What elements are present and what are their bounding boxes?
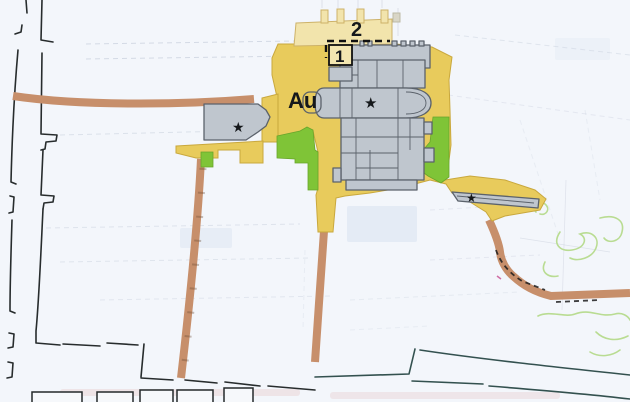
monument-star-church: ★ [364, 95, 377, 112]
crenellation [419, 41, 424, 46]
tower-footing [321, 10, 328, 23]
green-area-west [201, 152, 213, 167]
crenellation [410, 41, 415, 46]
abbey-south-band [346, 180, 417, 190]
building-outline [97, 392, 133, 402]
zone1-label: 1 [335, 47, 344, 66]
tower-footing-gray [393, 13, 400, 22]
zoning-map: Au 2 1 ★ ★ ★ [0, 0, 630, 402]
building-outline [32, 392, 82, 402]
crenellation [392, 41, 397, 46]
abbey-east-bump [424, 148, 434, 162]
area-code-label: Au [288, 88, 317, 113]
map-canvas: Au 2 1 ★ ★ ★ [0, 0, 630, 402]
crenellation [401, 41, 406, 46]
abbey-foot [333, 168, 341, 182]
abbey-cloister [341, 118, 424, 180]
built-up-patch [347, 206, 417, 242]
built-up-patch [555, 38, 610, 60]
abbey-annex [329, 67, 352, 81]
bleed-through-line [330, 392, 560, 399]
monument-star-west: ★ [232, 119, 245, 135]
built-up-patch [180, 228, 232, 248]
monument-star-east: ★ [466, 191, 477, 205]
abbey-east-bump [424, 122, 432, 134]
zone2-label: 2 [351, 19, 362, 41]
tower-footing [381, 10, 388, 23]
building-outline [140, 390, 173, 402]
building-outline [224, 388, 253, 402]
boundary-line [26, 0, 27, 13]
building-outline [177, 390, 213, 402]
tower-footing [337, 9, 344, 23]
